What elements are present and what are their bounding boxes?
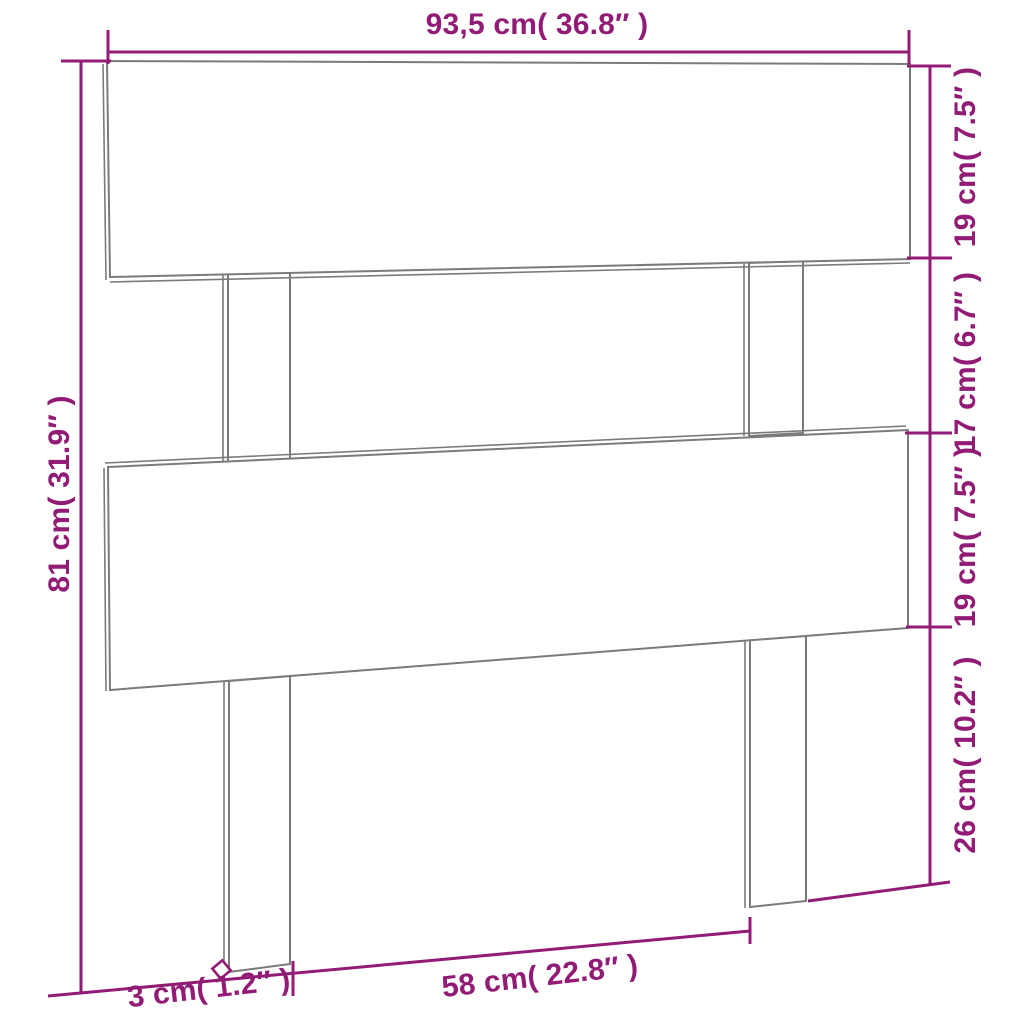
- dim-label-top-board-height: 19 cm( 7.5″ ): [951, 67, 981, 247]
- dim-label-overall-width: 93,5 cm( 36.8″ ): [426, 10, 649, 40]
- headboard-outline: [103, 61, 910, 973]
- right-slat: [749, 261, 803, 436]
- top-board-left-thickness: [103, 64, 106, 280]
- dim-label-leg-height: 26 cm( 10.2″ ): [951, 656, 981, 853]
- lower-board-left-thickness: [104, 468, 106, 691]
- top-board: [107, 61, 910, 277]
- dim-label-overall-height: 81 cm( 31.9″ ): [45, 395, 75, 592]
- dim-label-board-gap-height: 17 cm( 6.7″ ): [951, 272, 981, 452]
- left-leg: [229, 676, 290, 972]
- right-leg: [750, 636, 806, 907]
- headboard-line-drawing: [0, 0, 1024, 1024]
- dim-label-lower-board-height: 19 cm( 7.5″ ): [951, 447, 981, 627]
- headboard-dimension-diagram: 93,5 cm( 36.8″ ) 81 cm( 31.9″ ) 19 cm( 7…: [0, 0, 1024, 1024]
- dim-line-bottom-right-segment: [808, 882, 950, 901]
- left-slat: [228, 272, 290, 463]
